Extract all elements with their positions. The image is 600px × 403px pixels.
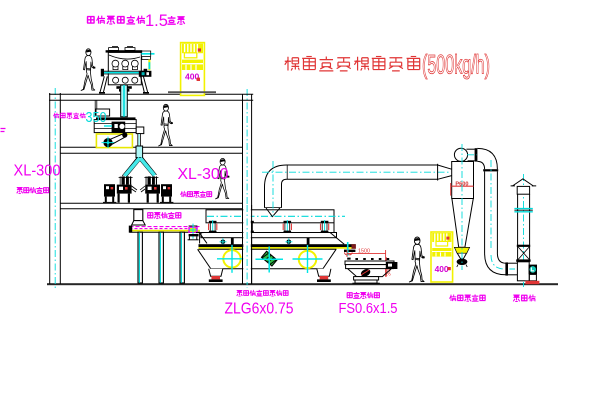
svg-text:ZLG6x0.75: ZLG6x0.75	[225, 301, 294, 318]
svg-text:1.5: 1.5	[145, 12, 168, 30]
svg-text:1500: 1500	[358, 249, 370, 255]
svg-text:XL-300: XL-300	[14, 162, 61, 179]
svg-text:400: 400	[435, 264, 449, 274]
svg-text:FS0.6x1.5: FS0.6x1.5	[339, 300, 398, 317]
svg-text:(500kg/h): (500kg/h)	[422, 50, 490, 80]
svg-text:XL-300: XL-300	[178, 166, 229, 183]
svg-text:350: 350	[86, 110, 107, 126]
